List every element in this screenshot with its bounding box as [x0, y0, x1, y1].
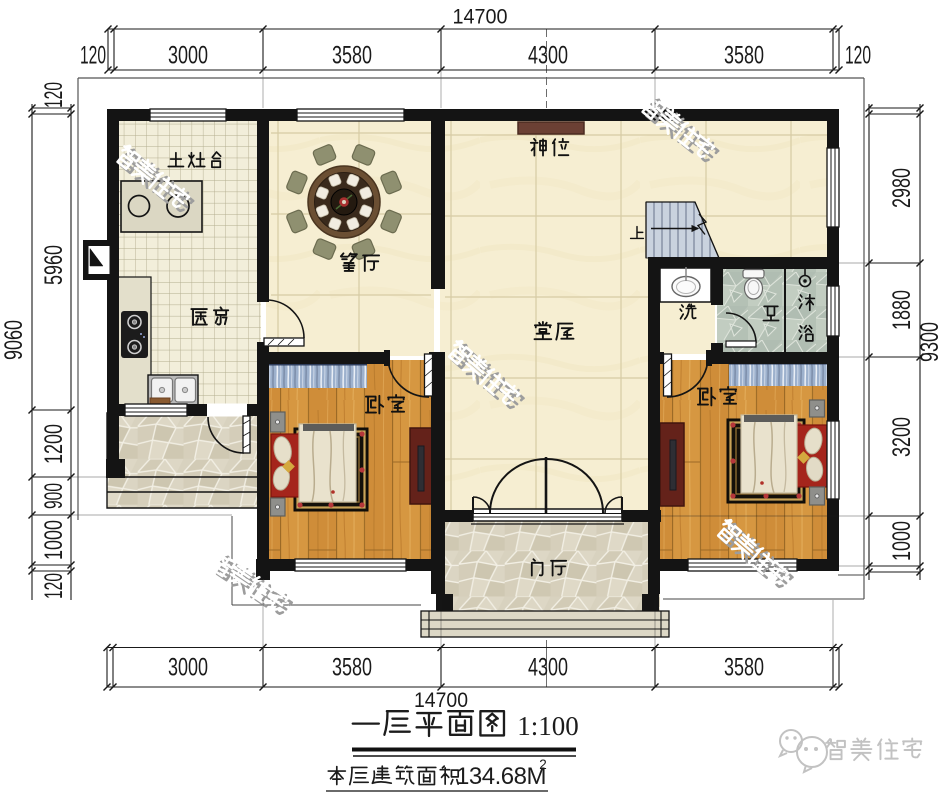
svg-text:3200: 3200 [888, 417, 916, 457]
svg-text:4300: 4300 [528, 654, 568, 682]
svg-text:9060: 9060 [0, 320, 28, 360]
svg-text:1880: 1880 [888, 290, 916, 330]
svg-text:1000: 1000 [40, 520, 68, 560]
svg-text:14700: 14700 [453, 6, 508, 29]
svg-text:900: 900 [40, 483, 68, 509]
svg-text:134.68M: 134.68M [456, 763, 546, 790]
svg-text:2980: 2980 [888, 168, 916, 208]
svg-text:5960: 5960 [40, 245, 68, 285]
svg-text:3580: 3580 [724, 42, 764, 70]
svg-text:120: 120 [80, 42, 106, 70]
svg-text:120: 120 [40, 82, 68, 108]
svg-text:3000: 3000 [168, 42, 208, 70]
svg-text:14700: 14700 [414, 689, 468, 712]
svg-text:9300: 9300 [916, 322, 944, 362]
svg-text:2: 2 [539, 757, 547, 772]
svg-text:3000: 3000 [168, 654, 208, 682]
svg-text:4300: 4300 [528, 42, 568, 70]
svg-text:120: 120 [40, 573, 68, 599]
svg-text:120: 120 [845, 42, 871, 70]
svg-text:1000: 1000 [888, 521, 916, 561]
svg-text:1200: 1200 [40, 424, 68, 464]
svg-text:1:100: 1:100 [517, 711, 579, 741]
svg-text:3580: 3580 [724, 654, 764, 682]
svg-text:3580: 3580 [332, 654, 372, 682]
svg-text:3580: 3580 [332, 42, 372, 70]
